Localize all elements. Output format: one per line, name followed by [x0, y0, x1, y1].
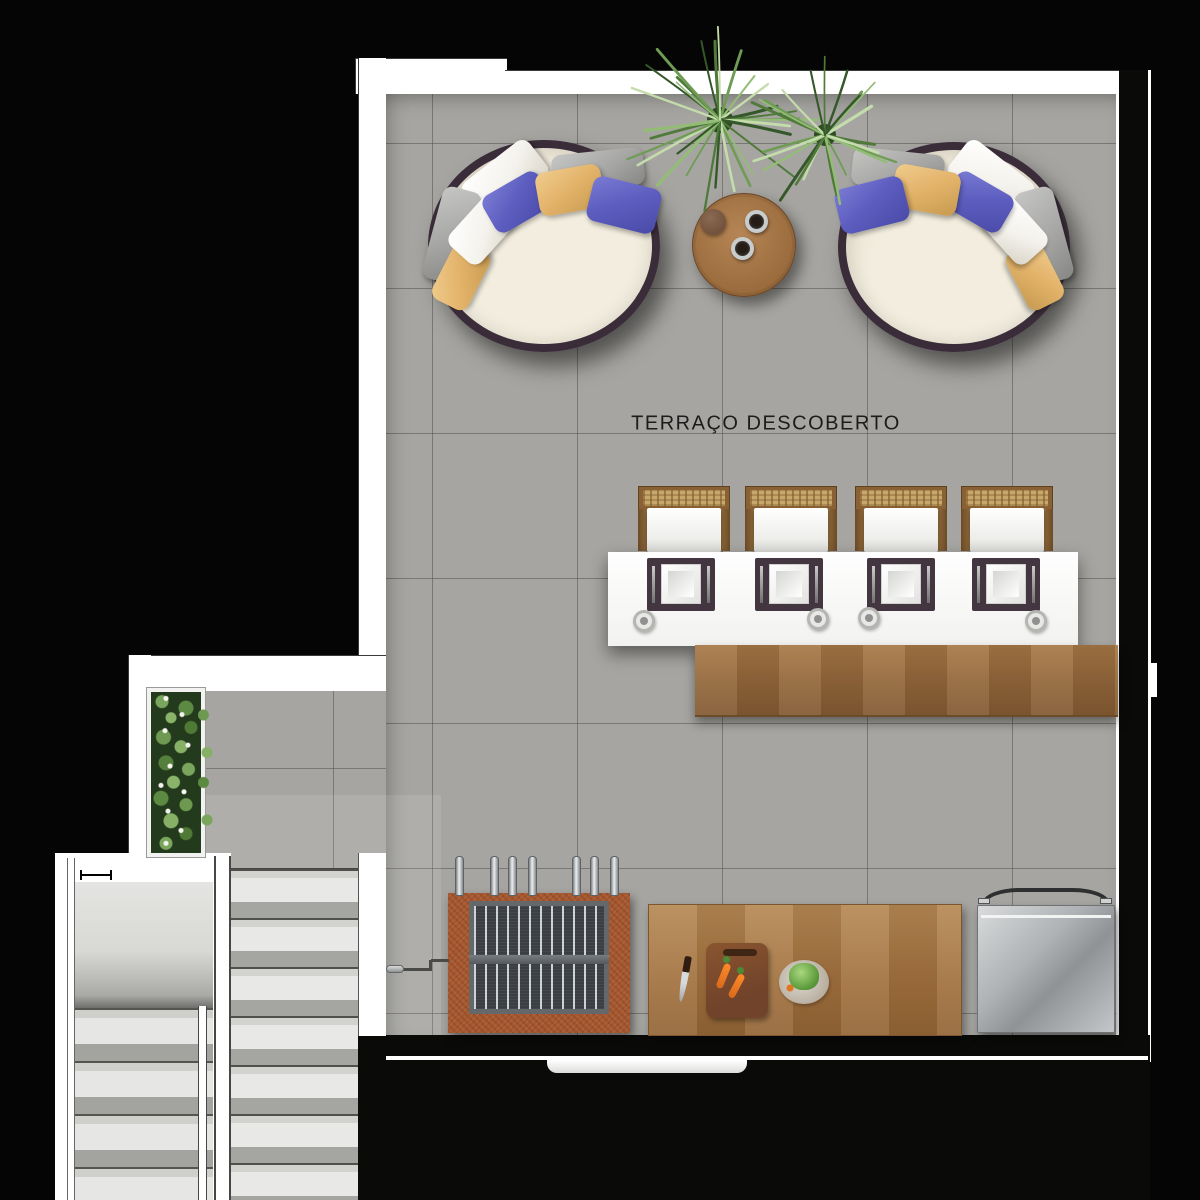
fork-icon	[760, 566, 763, 603]
grill-crank	[431, 959, 449, 962]
stair-landing	[75, 882, 213, 1008]
chair-post	[827, 509, 837, 551]
skewer-handle	[490, 856, 499, 896]
grill-crank-handle	[386, 965, 404, 973]
right-wall-notch	[1148, 663, 1157, 697]
stair-flight-left	[75, 1008, 213, 1200]
skewer-handle	[528, 856, 537, 896]
carrot-slices	[784, 984, 796, 992]
planter-foliage-overhang	[198, 700, 216, 850]
plate	[661, 564, 701, 604]
drinking-glass	[858, 607, 880, 629]
chair-rattan	[966, 490, 1048, 506]
room-label: TERRAÇO DESCOBERTO	[631, 413, 901, 436]
fork-icon	[652, 566, 655, 603]
chair-cushion	[647, 508, 721, 552]
skewer-handle	[572, 856, 581, 896]
grill-crank	[400, 968, 432, 971]
fork-icon	[872, 566, 875, 603]
planter-foliage	[151, 692, 201, 853]
stair-column	[358, 853, 386, 1037]
placemat	[647, 558, 715, 611]
carrot-greens	[736, 966, 745, 975]
knife-icon	[927, 566, 930, 603]
chair-rattan	[643, 490, 725, 506]
placemat	[755, 558, 823, 611]
right-wall-outer-line	[1148, 70, 1151, 1062]
stainless-appliance	[977, 905, 1115, 1033]
fork-icon	[977, 566, 980, 603]
stair-rail-left	[67, 858, 75, 1200]
skewer-handle	[590, 856, 599, 896]
chair-cushion	[970, 508, 1044, 552]
dining-chair	[745, 486, 837, 552]
placemat	[867, 558, 935, 611]
stair-flight-right	[231, 868, 358, 1200]
carrot-greens	[722, 955, 731, 964]
appliance-handle	[982, 888, 1110, 904]
chair-cushion	[864, 508, 938, 552]
knife-icon	[1032, 566, 1035, 603]
dining-chair	[961, 486, 1053, 552]
stair-rail-inner	[198, 1006, 207, 1200]
floor-plan-canvas: TERRAÇO DESCOBERTO	[0, 0, 1200, 1200]
wood-buffet-counter	[695, 645, 1118, 717]
chair-rattan	[750, 490, 832, 506]
door-handle-symbol	[80, 869, 112, 881]
drinking-glass	[633, 610, 655, 632]
plate	[881, 564, 921, 604]
chair-post	[1043, 509, 1053, 551]
dining-chair	[638, 486, 730, 552]
skewer-handle	[455, 856, 464, 896]
knife-icon	[707, 566, 710, 603]
plate	[986, 564, 1026, 604]
left-wall	[358, 58, 386, 657]
chair-cushion	[754, 508, 828, 552]
bottom-awning	[547, 1060, 747, 1073]
chair-rattan	[860, 490, 942, 506]
stair-column-base	[358, 1036, 386, 1200]
appliance-handle-cap	[978, 898, 990, 904]
appliance-handle-cap	[1100, 898, 1112, 904]
chair-post	[720, 509, 730, 551]
skewer-handle	[610, 856, 619, 896]
stair-rail-center	[214, 856, 231, 1200]
placemat	[972, 558, 1040, 611]
bottom-wall-line	[374, 1056, 1148, 1060]
chair-post	[937, 509, 947, 551]
grill-center-bar	[469, 955, 609, 964]
drinking-glass	[807, 608, 829, 630]
knife-icon	[815, 566, 818, 603]
skewer-handle	[508, 856, 517, 896]
extension-top-wall	[128, 655, 386, 691]
plate	[769, 564, 809, 604]
drinking-glass	[1025, 610, 1047, 632]
palm-plants	[600, 15, 930, 250]
dining-chair	[855, 486, 947, 552]
right-wall-inner-line	[1116, 93, 1119, 1036]
right-wall-black	[1119, 70, 1148, 1062]
